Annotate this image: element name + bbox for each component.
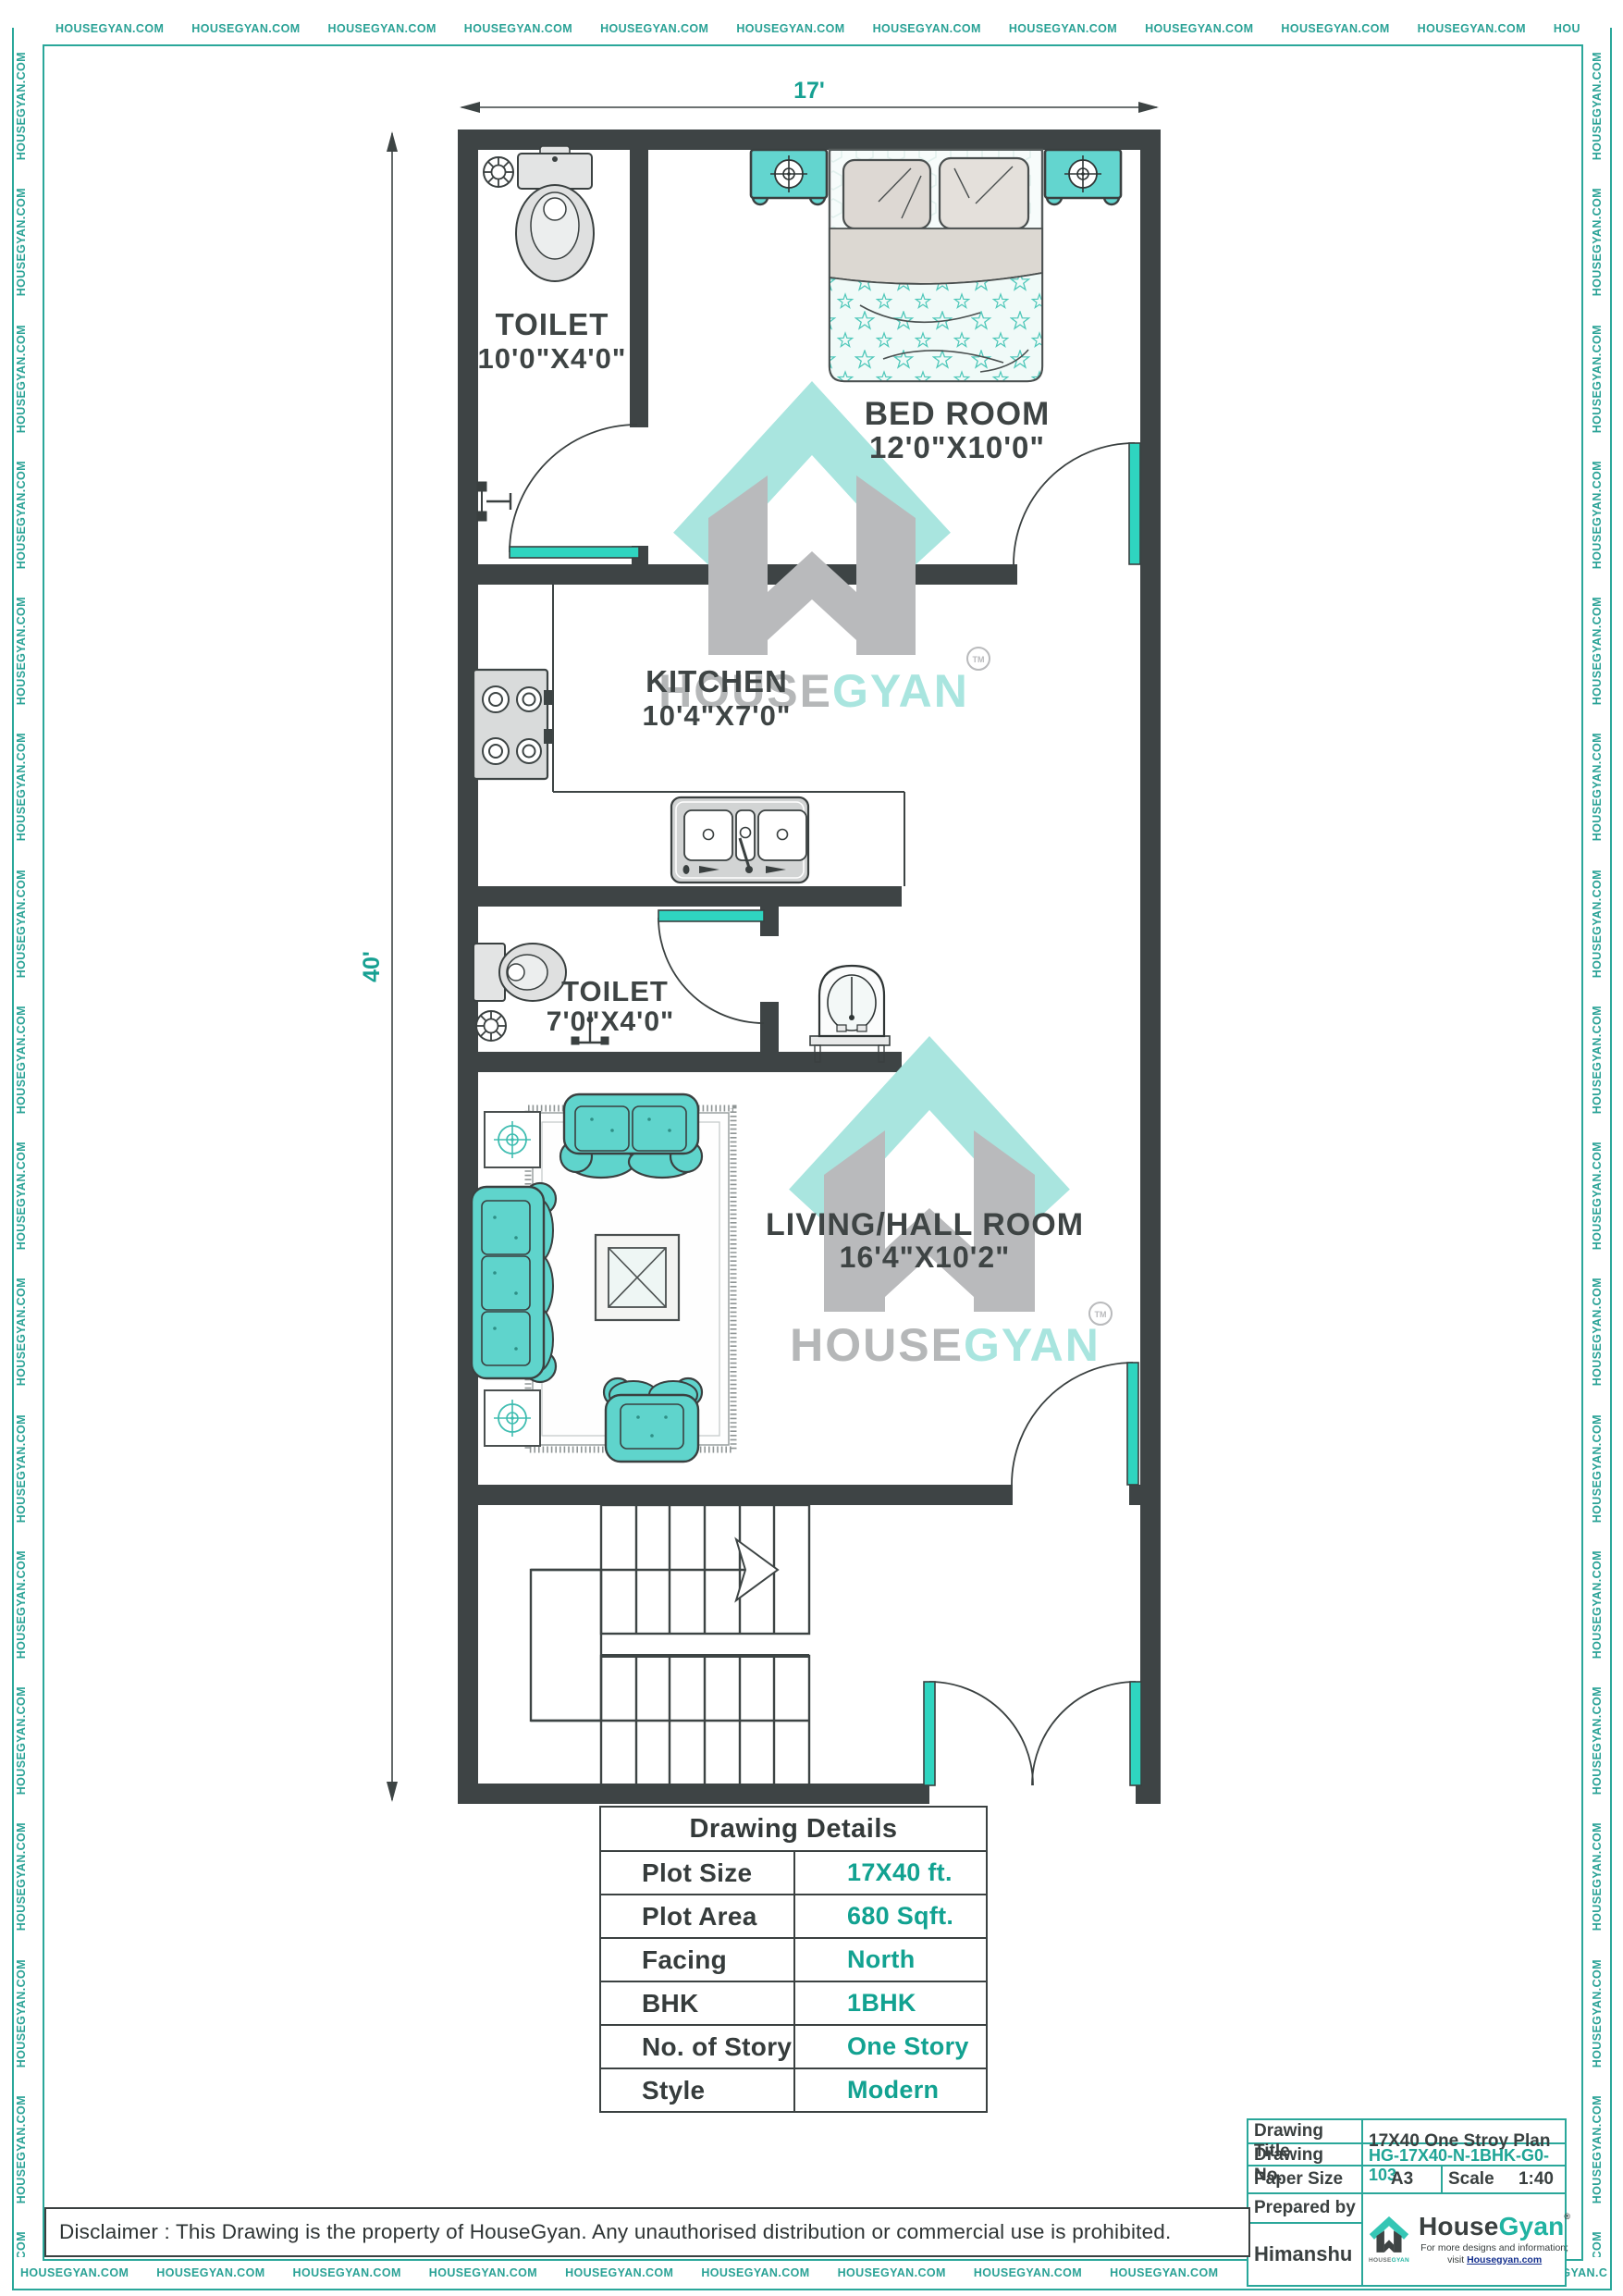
table-row: BHK 1BHK <box>601 1982 986 2026</box>
frame-line-right <box>1581 44 1583 2261</box>
dimension-height-label: 40' <box>359 951 385 982</box>
border-watermark-text: HOUSEGYAN.COM <box>15 870 31 978</box>
exhaust-fan-icon <box>484 157 513 187</box>
border-watermark-text: HOUSEGYAN.COM <box>1110 2266 1218 2282</box>
border-watermark-text: HOUSEGYAN.COM <box>15 52 31 160</box>
armchair <box>604 1378 702 1462</box>
main-entrance-double-door <box>924 1682 1141 1785</box>
border-watermark-text: HOUSEGYAN.COM <box>1591 597 1606 705</box>
border-watermark-text: HOUSEGYAN.COM <box>701 2266 809 2282</box>
side-table-top <box>485 1112 540 1167</box>
border-watermark-text: HOUSEGYAN.COM <box>1145 22 1253 38</box>
border-watermark-text: HOUSEGYAN.COM <box>20 2266 129 2282</box>
border-watermark-text: HOUSEGYAN.COM <box>1591 461 1606 569</box>
border-watermark-right: HOUSEGYAN.COMHOUSEGYAN.COMHOUSEGYAN.COMH… <box>1591 52 1606 2257</box>
border-watermark-text: HOUSEGYAN.COM <box>15 1822 31 1931</box>
border-watermark-text: HOUSEGYAN.COM <box>15 461 31 569</box>
table-row: No. of Story One Story <box>601 2026 986 2069</box>
floor-plan: 17' 40' <box>351 51 1184 1827</box>
nightstand-left <box>751 150 827 204</box>
border-watermark-text: HOUSEGYAN.COM <box>1591 1686 1606 1795</box>
border-line-bottom-outer <box>12 2289 1612 2290</box>
toilet1-door <box>510 425 639 558</box>
border-watermark-text: HOUSEGYAN.COM <box>1591 733 1606 841</box>
border-watermark-text: HOUSEGYAN.COM <box>1591 325 1606 433</box>
border-watermark-text: HOUSEGYAN.COM <box>15 1006 31 1114</box>
border-watermark-left: HOUSEGYAN.COMHOUSEGYAN.COMHOUSEGYAN.COMH… <box>15 52 31 2257</box>
watermark-gyan: GYAN <box>964 1319 1100 1371</box>
housegyan-link[interactable]: Housegyan.com <box>1467 2254 1542 2265</box>
border-line-left-outer <box>12 28 14 2290</box>
border-watermark-text: HOUSEGYAN.COM <box>1591 188 1606 296</box>
logo-tagline: For more designs and information; visit … <box>1420 2242 1568 2266</box>
logo-mini-text: HOUSEGYAN <box>1369 2257 1409 2264</box>
svg-text:TM: TM <box>973 655 985 664</box>
border-watermark-text: HOUSEGYAN.COM <box>1591 2095 1606 2203</box>
floorplan-page: { "border": { "text": "HOUSEGYAN.COM" },… <box>0 0 1623 2296</box>
border-watermark-text: HOUSEGYAN.COM <box>15 325 31 433</box>
border-watermark-text: HOUSEGYAN.COM <box>15 188 31 296</box>
kitchen-sink <box>671 797 808 883</box>
border-watermark-text: HOUSEGYAN.COM <box>1591 1278 1606 1386</box>
border-watermark-text: HOUSEGYAN.COM <box>328 22 436 38</box>
bedroom-label: BED ROOM <box>865 396 1051 432</box>
border-watermark-text: HOUSEGYAN.COM <box>15 1278 31 1386</box>
border-watermark-text: HOUSEGYAN.COM <box>15 1414 31 1523</box>
scale-value: 1:40 <box>1518 2169 1554 2190</box>
prepared-by-value: Himanshu <box>1248 2224 1361 2285</box>
border-watermark-text: HOUSEGYAN.COM <box>1591 870 1606 978</box>
toilet1-label: TOILET <box>496 307 609 341</box>
border-watermark-text: HOUSEGYAN.COM <box>293 2266 401 2282</box>
table-row: Plot Area 680 Sqft. <box>601 1895 986 1939</box>
table-row: Facing North <box>601 1939 986 1982</box>
border-watermark-text: HOUSEGYAN.COM <box>1591 2231 1606 2257</box>
side-table-bottom <box>485 1390 540 1446</box>
sofa-two-seater <box>560 1094 702 1178</box>
border-watermark-text: HOUSEGYAN.COM <box>873 22 981 38</box>
dimension-height: 40' <box>359 131 398 1802</box>
stove <box>473 670 552 779</box>
border-watermark-text: HOUSEGYAN.COM <box>1591 1822 1606 1931</box>
watermark-house: HOUSE <box>790 1319 964 1371</box>
border-watermark-text: HOUSEGYAN.COM <box>736 22 844 38</box>
housegyan-logo: HOUSEGYAN HouseGyan® For more designs an… <box>1363 2194 1572 2285</box>
staircase <box>531 1505 809 1787</box>
sofa-three-seater <box>472 1183 556 1382</box>
border-watermark-text: HOUSEGYAN.COM <box>974 2266 1082 2282</box>
border-watermark-text: HOUSEGYAN.COM <box>1591 1414 1606 1523</box>
wash-basin <box>810 966 890 1062</box>
svg-text:TM: TM <box>1095 1310 1107 1319</box>
scale-label: Scale <box>1448 2169 1494 2190</box>
coffee-table <box>596 1235 679 1320</box>
border-watermark-text: HOUSEGYAN.COM <box>15 597 31 705</box>
toilet1-shower-tap-icon <box>477 482 510 521</box>
drawing-details-table: Drawing Details Plot Size 17X40 ft. Plot… <box>599 1806 988 2113</box>
dimension-width-label: 17' <box>793 78 825 104</box>
border-line-right-outer <box>1610 28 1612 2290</box>
dimension-width: 17' <box>460 78 1159 113</box>
border-watermark-text: HOUSEGYAN.COM <box>1281 22 1389 38</box>
border-watermark-text: HOUSEGYAN.COM <box>838 2266 946 2282</box>
drawing-details-title: Drawing Details <box>601 1808 986 1852</box>
table-row: Plot Size 17X40 ft. <box>601 1852 986 1895</box>
border-watermark-text: HOUSEGYAN.COM <box>1591 1550 1606 1659</box>
svg-text:HOUSEGYAN: HOUSEGYAN <box>790 1319 1100 1371</box>
border-watermark-text: HOUSEGYAN.COM <box>15 733 31 841</box>
border-watermark-text: HOUSEGYAN.COM <box>15 1550 31 1659</box>
border-watermark-text: HOUSEGYAN.COM <box>1591 1006 1606 1114</box>
table-row: Style Modern <box>601 2069 986 2111</box>
border-watermark-text: HOUSEGYAN.COM <box>15 1959 31 2068</box>
toilet1-fixture <box>516 146 594 281</box>
logo-wordmark: HouseGyan® <box>1419 2213 1570 2240</box>
border-watermark-text: HOUSEGYAN.COM <box>15 1142 31 1250</box>
border-watermark-text: HOUSEGYAN.COM <box>15 1686 31 1795</box>
toilet2-fixture <box>473 944 566 1001</box>
border-watermark-text: HOUSEGYAN.COM <box>1591 52 1606 160</box>
watermark-gyan: GYAN <box>832 665 969 717</box>
border-watermark-text: HOUSEGYAN.COM <box>464 22 572 38</box>
border-watermark-text: HOUSEGYAN.COM <box>1591 1959 1606 2068</box>
exhaust-fan-icon <box>476 1011 506 1041</box>
kitchen-size: 10'4"X7'0" <box>642 699 791 732</box>
disclaimer: Disclaimer : This Drawing is the propert… <box>44 2207 1250 2257</box>
paper-size-label: Paper Size <box>1248 2166 1363 2192</box>
border-watermark-text: HOUSEGYAN.COM <box>55 22 164 38</box>
housegyan-house-icon <box>1365 2216 1413 2257</box>
border-watermark-text: HOUSEGYAN.COM <box>565 2266 673 2282</box>
toilet2-label: TOILET <box>561 975 669 1007</box>
living-room-door <box>1012 1363 1138 1485</box>
border-watermark-text: HOUSEGYAN.COM <box>1418 22 1526 38</box>
border-watermark-text: HOUSEGYAN.COM <box>600 22 708 38</box>
bedroom-size: 12'0"X10'0" <box>869 430 1045 464</box>
border-watermark-text: HOUSEGYAN.COM <box>1591 1142 1606 1250</box>
toilet1-size: 10'0"X4'0" <box>477 342 626 375</box>
border-watermark-text: HOUSEGYAN.COM <box>1554 22 1580 38</box>
frame-line-top <box>43 44 1583 46</box>
border-watermark-top: HOUSEGYAN.COMHOUSEGYAN.COMHOUSEGYAN.COMH… <box>55 22 1580 38</box>
border-watermark-text: HOUSEGYAN.COM <box>15 2095 31 2203</box>
paper-size-value: A3 <box>1363 2166 1443 2192</box>
kitchen-label: KITCHEN <box>646 664 788 698</box>
toilet2-size: 7'0"X4'0" <box>547 1006 674 1037</box>
prepared-by-label: Prepared by <box>1248 2194 1361 2224</box>
living-size: 16'4"X10'2" <box>840 1241 1011 1274</box>
frame-line-left <box>43 44 44 2261</box>
border-watermark-text: HOUSEGYAN.COM <box>429 2266 537 2282</box>
title-block: Drawing Title 17X40 One Stroy Plan Drawi… <box>1247 2118 1567 2287</box>
border-watermark-text: HOUSEGYAN.COM <box>1009 22 1117 38</box>
nightstand-right <box>1045 150 1121 204</box>
border-watermark-text: HOUSEGYAN.COM <box>191 22 300 38</box>
bed <box>830 150 1042 381</box>
border-watermark-text: HOUSEGYAN.COM <box>15 2231 31 2257</box>
living-label: LIVING/HALL ROOM <box>766 1207 1084 1242</box>
border-watermark-text: HOUSEGYAN.COM <box>156 2266 264 2282</box>
